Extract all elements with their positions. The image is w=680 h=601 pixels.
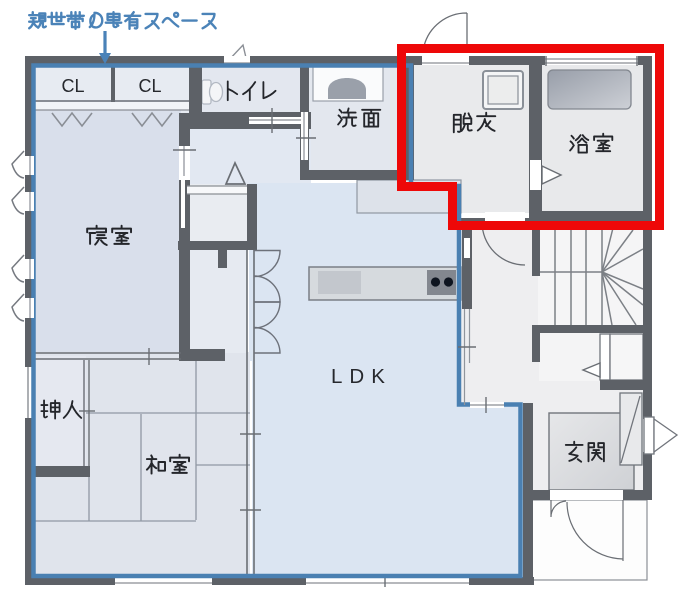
svg-text:LDK: LDK [331, 365, 392, 388]
svg-text:CL: CL [138, 76, 161, 96]
svg-text:CL: CL [61, 76, 84, 96]
